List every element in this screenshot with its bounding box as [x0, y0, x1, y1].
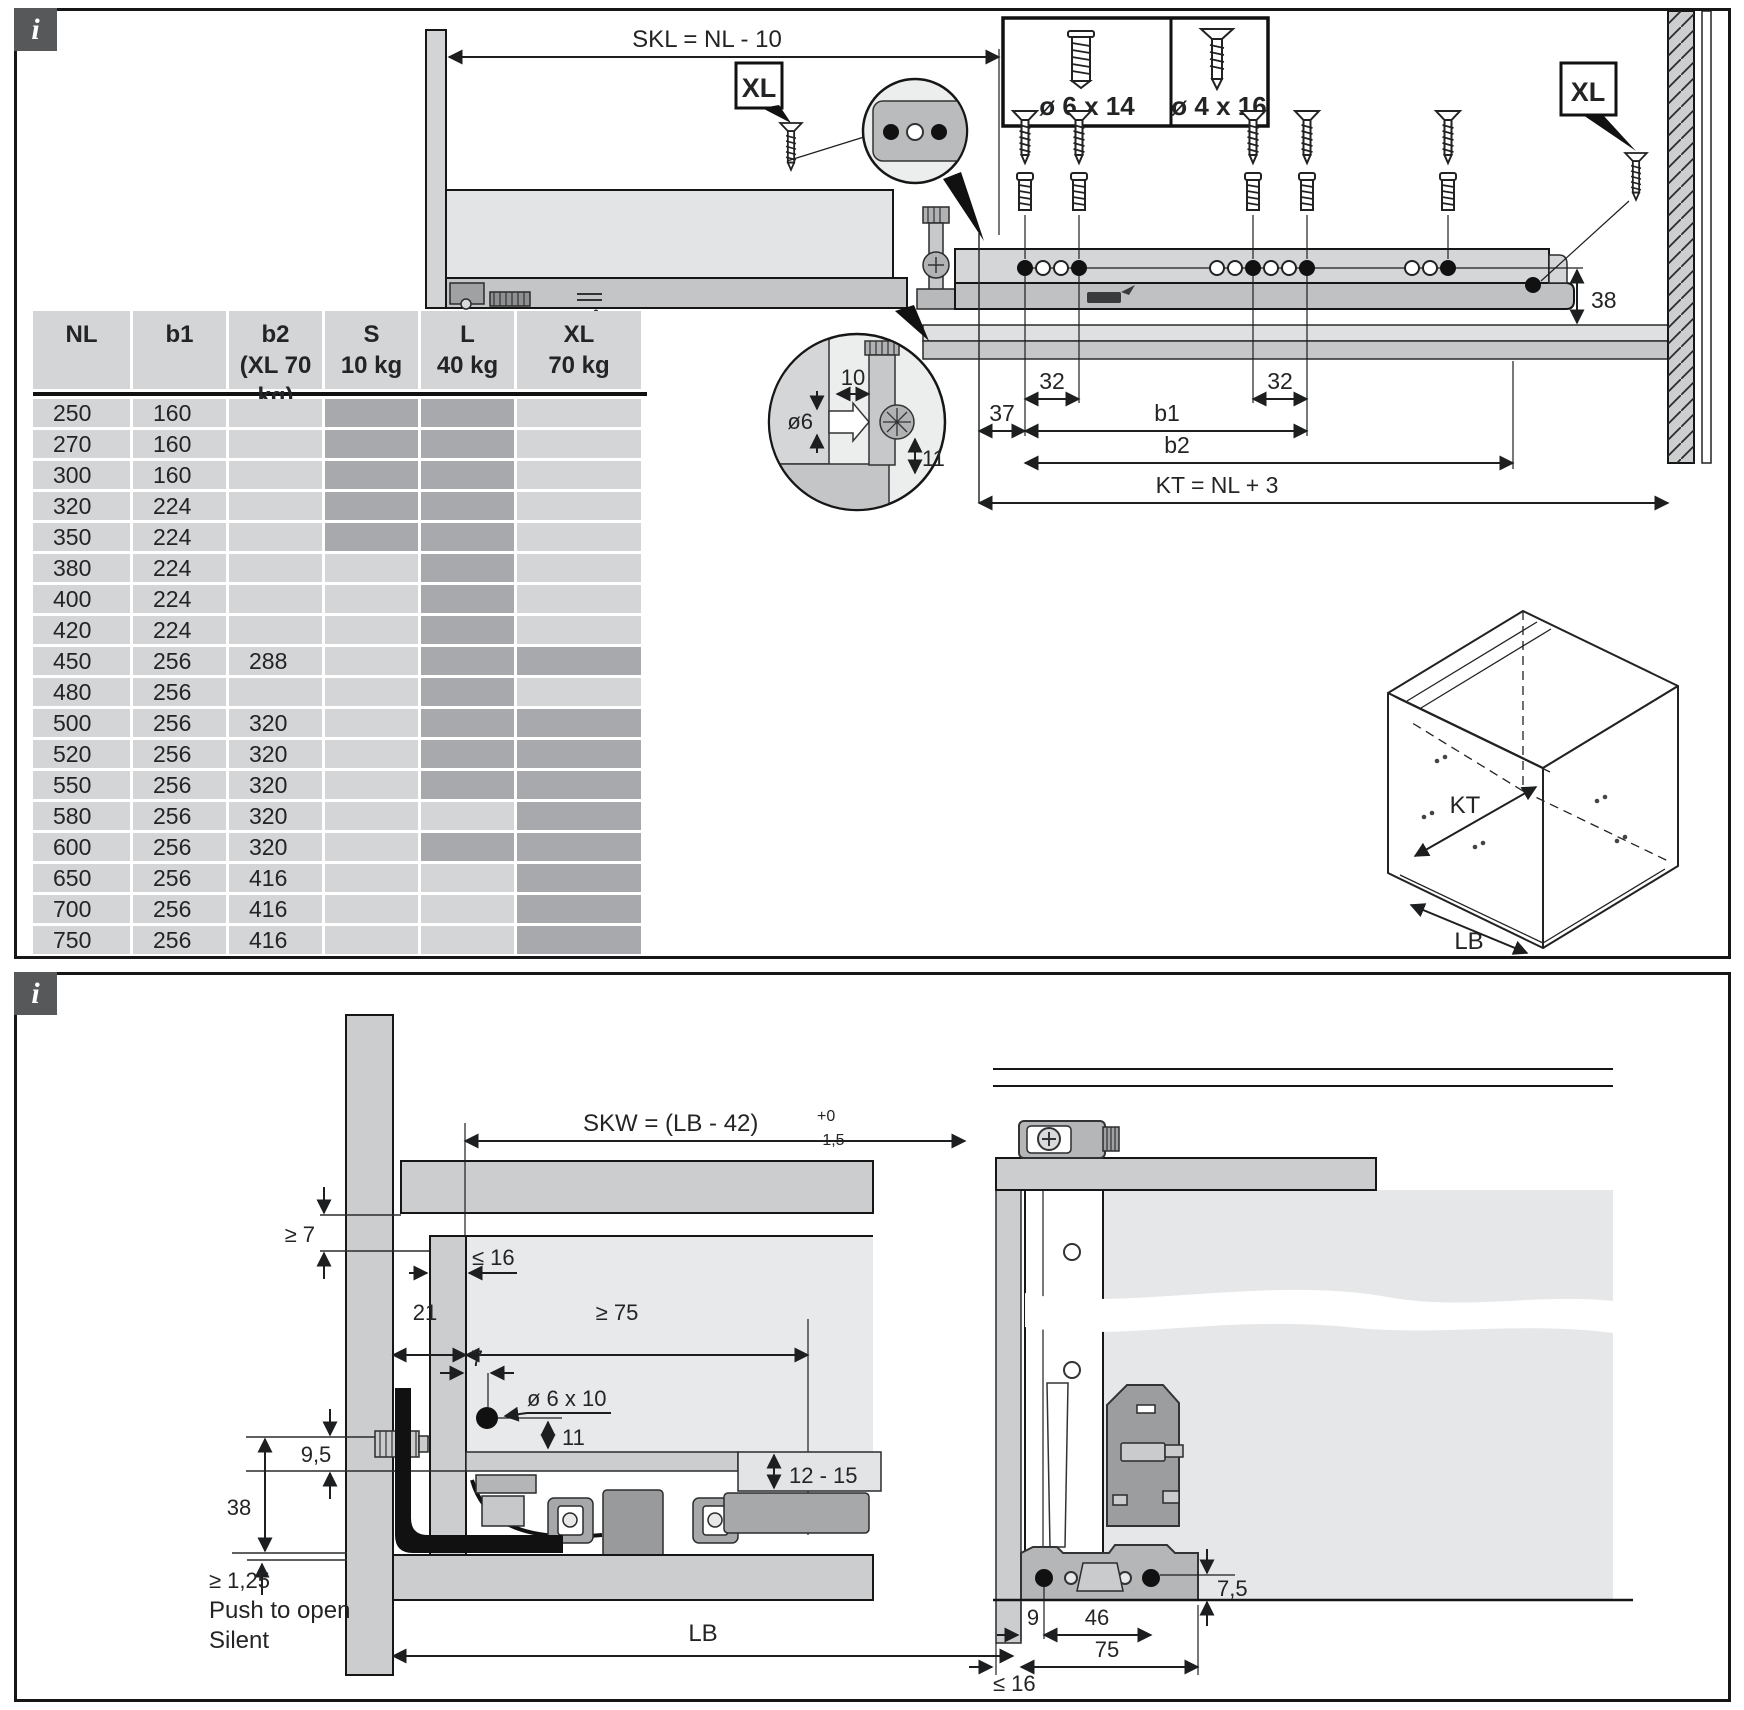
cell-l-40kg	[421, 554, 514, 582]
countersunk-screw-icon	[780, 123, 802, 170]
cabinet-iso-view: KT LB	[1388, 611, 1678, 955]
dim-kt: KT	[1450, 792, 1481, 819]
cell-b1: 256	[133, 926, 226, 954]
dim-ge75: ≥ 75	[596, 1300, 639, 1325]
skw-tol-minus: -1,5	[817, 1132, 845, 1149]
cell-xl-70kg	[517, 585, 641, 613]
cell-l-40kg	[421, 678, 514, 706]
dim-32-left: 32	[1039, 368, 1065, 394]
cabinet-rail-view	[917, 111, 1668, 503]
cell-l-40kg	[421, 399, 514, 427]
cell-b2	[229, 461, 322, 489]
cell-xl-70kg	[517, 554, 641, 582]
cell-xl-70kg	[517, 740, 641, 768]
callout-pointer	[1583, 115, 1636, 151]
cell-b1: 160	[133, 430, 226, 458]
cell-b2: 416	[229, 926, 322, 954]
bottom-recess-dimension: 12 - 15	[738, 1452, 881, 1491]
cell-l-40kg	[421, 833, 514, 861]
cell-xl-70kg	[517, 895, 641, 923]
cell-xl-70kg	[517, 833, 641, 861]
size-table-rows: 250 160 270 160 300 160 320 224	[33, 399, 647, 954]
cell-b2: 416	[229, 895, 322, 923]
cell-s-10kg	[325, 802, 418, 830]
cell-xl-70kg	[517, 399, 641, 427]
cell-b2	[229, 430, 322, 458]
cell-s-10kg	[325, 833, 418, 861]
cell-nl: 320	[33, 492, 130, 520]
runner-plate	[724, 1493, 869, 1533]
xl-callout-right: XL	[1541, 63, 1647, 281]
cell-b2	[229, 616, 322, 644]
cell-b1: 224	[133, 616, 226, 644]
drawer-body	[446, 190, 893, 278]
cell-s-10kg	[325, 461, 418, 489]
col-header-l: L40 kg	[421, 311, 514, 389]
cell-xl-70kg	[517, 926, 641, 954]
dim-le16: ≤ 16	[993, 1671, 1036, 1696]
xl-callout-left: XL	[736, 63, 864, 170]
cell-b2: 320	[229, 802, 322, 830]
cell-xl-70kg	[517, 523, 641, 551]
bottom-diagram: SKW = (LB - 42) +0 -1,5 ≥ 7 ≤ 16	[17, 975, 1728, 1699]
roller-icon	[461, 299, 471, 309]
cell-nl: 580	[33, 802, 130, 830]
callout-pointer	[762, 105, 791, 123]
dim-10: 10	[841, 365, 865, 390]
cell-nl: 700	[33, 895, 130, 923]
hole-dot-black	[883, 124, 899, 140]
hole-dot-white	[907, 124, 923, 140]
installation-rear-view: 7,5 9 46 75 ≤ 16	[969, 1069, 1633, 1696]
dim-38: 38	[1591, 287, 1617, 313]
cell-nl: 420	[33, 616, 130, 644]
dim-9-5: 9,5	[301, 1442, 332, 1467]
cell-xl-70kg	[517, 647, 641, 675]
info-icon: i	[14, 972, 57, 1015]
dim-9: 9	[1027, 1605, 1039, 1630]
col-header-b1: b1	[133, 311, 226, 389]
dim-lb: LB	[1454, 928, 1483, 955]
cell-s-10kg	[325, 864, 418, 892]
cell-nl: 520	[33, 740, 130, 768]
dim-46: 46	[1085, 1605, 1109, 1630]
cell-s-10kg	[325, 430, 418, 458]
fixing-hole-dot	[1142, 1569, 1160, 1587]
screw-size-left: ø 6 x 14	[1039, 91, 1135, 121]
cabinet-bottom-panel	[923, 325, 1668, 341]
adjuster-detail-callout: 10 ø6 11	[769, 305, 945, 510]
col-header-nl: NL	[33, 311, 130, 389]
cell-nl: 250	[33, 399, 130, 427]
cell-l-40kg	[421, 802, 514, 830]
mounting-screws	[1013, 111, 1460, 259]
dim-dia6: ø6	[787, 409, 813, 434]
page: i	[0, 0, 1744, 1710]
skl-label: SKL = NL - 10	[632, 26, 782, 53]
wall-section	[1668, 11, 1711, 463]
dim-32-right: 32	[1267, 368, 1293, 394]
cell-s-10kg	[325, 926, 418, 954]
info-icon: i	[14, 8, 57, 51]
screw-size-box: ø 6 x 14 ø 4 x 16	[1003, 18, 1268, 126]
dim-kt-formula: KT = NL + 3	[1156, 472, 1279, 498]
cell-b2: 320	[229, 771, 322, 799]
cell-xl-70kg	[517, 461, 641, 489]
cell-nl: 750	[33, 926, 130, 954]
cell-nl: 550	[33, 771, 130, 799]
dim-11: 11	[922, 446, 945, 471]
cell-b2	[229, 554, 322, 582]
cabinet-interior	[1103, 1190, 1613, 1600]
cell-b2: 320	[229, 740, 322, 768]
col-header-s: S10 kg	[325, 311, 418, 389]
dim-ge125: ≥ 1,25	[209, 1568, 270, 1593]
panel-slot	[1047, 1383, 1068, 1547]
cell-b1: 224	[133, 585, 226, 613]
dim-75: 75	[1095, 1637, 1119, 1662]
panel-hole	[1064, 1244, 1080, 1260]
hole-dot-black	[931, 124, 947, 140]
dim-7: 7	[471, 1346, 483, 1371]
cell-s-10kg	[325, 523, 418, 551]
cell-xl-70kg	[517, 430, 641, 458]
cell-xl-70kg	[517, 802, 641, 830]
xl-label-right: XL	[1571, 77, 1606, 107]
dim-lb: LB	[688, 1620, 717, 1647]
height-adjuster	[1019, 1121, 1119, 1158]
cell-s-10kg	[325, 492, 418, 520]
cell-s-10kg	[325, 554, 418, 582]
dim-38: 38	[227, 1495, 251, 1520]
installation-side-view: SKW = (LB - 42) +0 -1,5 ≥ 7 ≤ 16	[209, 1015, 1013, 1675]
panel-section	[769, 334, 829, 464]
fixing-hole-dot	[1035, 1569, 1053, 1587]
lb-dimension: LB	[393, 1620, 1013, 1656]
drill-hole-dot	[476, 1407, 498, 1429]
cell-xl-70kg	[517, 771, 641, 799]
dim-7-5: 7,5	[1217, 1576, 1248, 1601]
skw-label: SKW = (LB - 42)	[583, 1110, 758, 1137]
cell-l-40kg	[421, 523, 514, 551]
cell-nl: 500	[33, 709, 130, 737]
applied-front-panel	[430, 1236, 466, 1563]
cell-l-40kg	[421, 461, 514, 489]
cell-s-10kg	[325, 399, 418, 427]
skw-tol-plus: +0	[817, 1108, 835, 1125]
cell-b1: 256	[133, 678, 226, 706]
header-divider	[33, 392, 647, 396]
dim-b1: b1	[1154, 400, 1180, 426]
feature-silent: Silent	[209, 1627, 269, 1654]
cell-xl-70kg	[517, 864, 641, 892]
dim-ge7: ≥ 7	[285, 1222, 315, 1247]
cell-nl: 350	[33, 523, 130, 551]
dim-le16: ≤ 16	[472, 1245, 515, 1270]
cell-l-40kg	[421, 740, 514, 768]
cell-nl: 650	[33, 864, 130, 892]
cell-b2: 320	[229, 709, 322, 737]
cell-nl: 600	[33, 833, 130, 861]
euro-screw-icon	[1068, 31, 1094, 88]
cell-b2	[229, 678, 322, 706]
hole-label: ø 6 x 10	[527, 1386, 606, 1411]
runner-window	[1077, 1563, 1123, 1591]
cell-b2	[229, 523, 322, 551]
cell-xl-70kg	[517, 616, 641, 644]
cell-l-40kg	[421, 585, 514, 613]
cell-b1: 256	[133, 833, 226, 861]
cell-s-10kg	[325, 709, 418, 737]
rail-lower	[955, 283, 1574, 309]
cell-l-40kg	[421, 895, 514, 923]
callout-pointer	[895, 305, 929, 341]
cell-b1: 256	[133, 709, 226, 737]
cell-nl: 300	[33, 461, 130, 489]
cell-nl: 400	[33, 585, 130, 613]
xl-label-left: XL	[742, 73, 777, 103]
cell-b2: 288	[229, 647, 322, 675]
cabinet-bottom-panel	[393, 1555, 873, 1600]
cell-xl-70kg	[517, 492, 641, 520]
drawer-back-top-rail	[996, 1158, 1376, 1190]
cell-b2: 320	[229, 833, 322, 861]
cell-b1: 224	[133, 554, 226, 582]
cell-b2	[229, 492, 322, 520]
drawer-front-panel	[401, 1161, 873, 1213]
dim-21: 21	[413, 1300, 437, 1325]
cell-l-40kg	[421, 864, 514, 892]
top-panel: i	[14, 8, 1731, 959]
rail-end-hole	[1525, 277, 1541, 293]
cell-l-40kg	[421, 926, 514, 954]
cell-b1: 256	[133, 740, 226, 768]
cell-nl: 380	[33, 554, 130, 582]
cell-l-40kg	[421, 492, 514, 520]
panel-hole	[1064, 1362, 1080, 1378]
cell-s-10kg	[325, 740, 418, 768]
cell-b1: 160	[133, 399, 226, 427]
cell-l-40kg	[421, 709, 514, 737]
cell-b1: 224	[133, 492, 226, 520]
cell-b1: 224	[133, 523, 226, 551]
drawer-bottom-edge	[466, 1452, 738, 1471]
cell-xl-70kg	[517, 709, 641, 737]
cell-nl: 450	[33, 647, 130, 675]
latch-block	[603, 1490, 663, 1558]
dim-11: 11	[562, 1425, 585, 1450]
dim-12-15: 12 - 15	[789, 1463, 858, 1488]
cell-s-10kg	[325, 647, 418, 675]
cell-b2	[229, 585, 322, 613]
drawer-interior	[466, 1236, 873, 1452]
cell-s-10kg	[325, 616, 418, 644]
adjuster-knob-icon	[923, 207, 949, 223]
size-table: NL b1 b2(XL 70 kg) S10 kg L40 kg XL70 kg…	[33, 311, 647, 954]
cell-b1: 256	[133, 895, 226, 923]
cell-s-10kg	[325, 585, 418, 613]
col-header-xl: XL70 kg	[517, 311, 641, 389]
cell-xl-70kg	[517, 678, 641, 706]
bottom-panel: i SKW = (LB - 42) +0 -1,5	[14, 972, 1731, 1702]
cell-b1: 256	[133, 864, 226, 892]
feature-push-to-open: Push to open	[209, 1597, 350, 1624]
col-header-b2: b2(XL 70 kg)	[229, 311, 322, 389]
drawer-side-view	[426, 30, 907, 315]
cell-b2	[229, 399, 322, 427]
cabinet-side-panel	[346, 1015, 393, 1675]
cell-s-10kg	[325, 678, 418, 706]
dim-37: 37	[989, 400, 1015, 426]
cabinet-side-panel	[996, 1158, 1021, 1643]
cell-b1: 160	[133, 461, 226, 489]
cell-l-40kg	[421, 647, 514, 675]
cell-b1: 256	[133, 802, 226, 830]
drawer-front-panel	[426, 30, 446, 308]
countersunk-screw-icon	[1625, 153, 1647, 200]
cell-s-10kg	[325, 771, 418, 799]
cell-nl: 480	[33, 678, 130, 706]
cell-l-40kg	[421, 771, 514, 799]
cell-l-40kg	[421, 430, 514, 458]
size-table-header: NL b1 b2(XL 70 kg) S10 kg L40 kg XL70 kg	[33, 311, 647, 389]
cell-b1: 256	[133, 647, 226, 675]
cell-l-40kg	[421, 616, 514, 644]
cell-nl: 270	[33, 430, 130, 458]
dim-b2: b2	[1164, 432, 1190, 458]
cell-b1: 256	[133, 771, 226, 799]
cell-b2: 416	[229, 864, 322, 892]
cell-s-10kg	[325, 895, 418, 923]
